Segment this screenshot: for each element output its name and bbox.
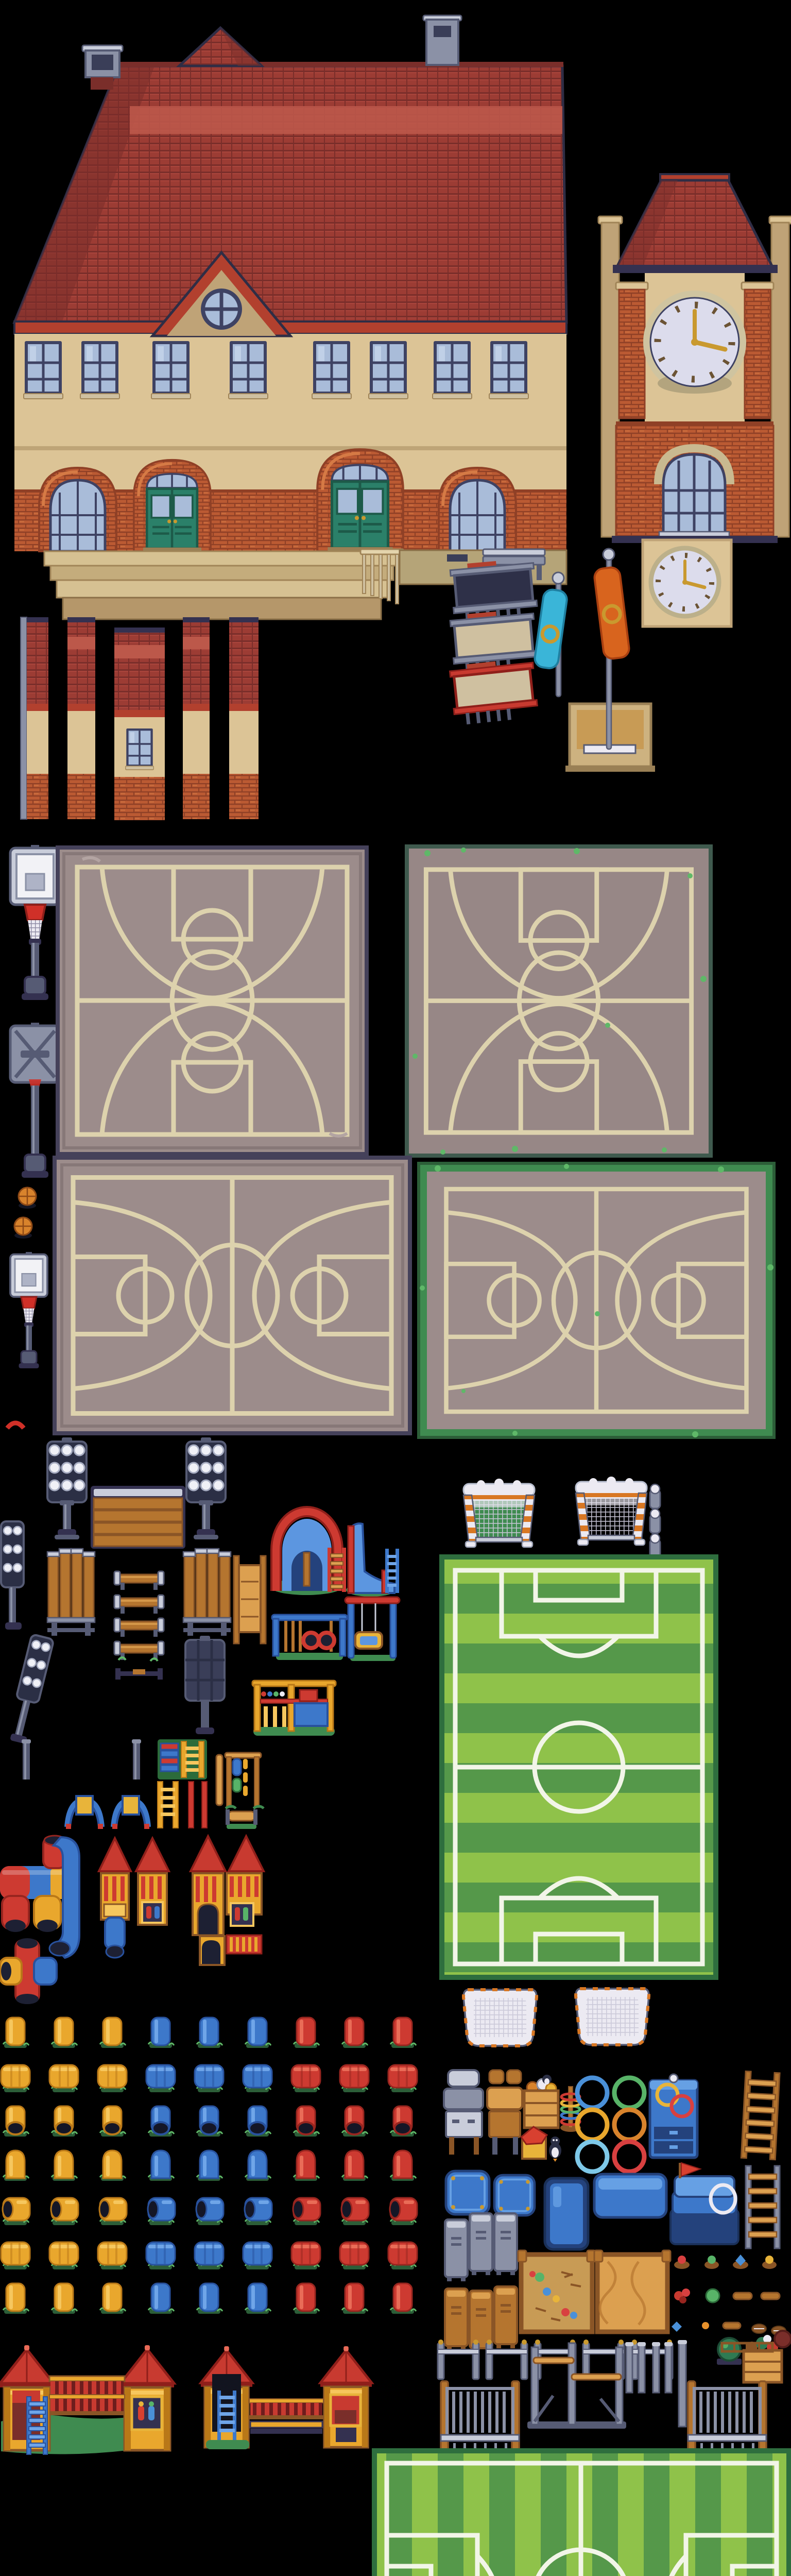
wall-strip-4 (183, 617, 210, 819)
step-unit-red-blue (158, 1739, 207, 1780)
tunnel-piece-yellow-v (100, 2018, 126, 2048)
tunnel-piece-blue-side (245, 2198, 272, 2225)
tunnel-piece-yellow-dome (100, 2150, 126, 2181)
hula-hoop (614, 2142, 644, 2172)
tunnel-piece-blue-h (195, 2242, 223, 2269)
tunnel-piece-yellow-h (49, 2065, 78, 2092)
tunnel-piece-blue-h (243, 2065, 272, 2092)
rim-red (7, 1423, 24, 1428)
wall-strips (21, 617, 259, 820)
tunnel-piece-red-v (390, 2018, 416, 2048)
penguin-toy (549, 2137, 561, 2162)
arch-window-right (439, 468, 516, 551)
monkey-bars (272, 1615, 347, 1660)
tunnel-piece-red-h (340, 2065, 369, 2092)
clock-wall-tile (643, 540, 731, 626)
tunnel-piece-blue-v (245, 2018, 271, 2048)
low-hurdle (115, 1668, 163, 1680)
tunnel-piece-red-side (390, 2198, 417, 2225)
fort-bridge-small (201, 2346, 372, 2449)
rings-cabinet (650, 2074, 697, 2158)
hula-hoop (614, 2110, 644, 2140)
goal-pegs (649, 1484, 665, 1559)
tunnel-piece-yellow-open (3, 2106, 29, 2137)
wall-strip-2 (67, 617, 95, 819)
hurdle-gate (486, 2340, 527, 2379)
chimney-2 (423, 15, 461, 65)
vault-boxes-gray (444, 2070, 483, 2155)
wall-strip-1 (21, 617, 48, 819)
clock-tower (598, 174, 791, 543)
tunnel-piece-red-v (294, 2283, 319, 2314)
wall-strip-5 (229, 617, 259, 819)
hula-hoop (577, 2110, 607, 2140)
tunnel-piece-yellow-dome (51, 2150, 77, 2181)
wood-bleacher-panel (91, 1486, 185, 1549)
soccer-field-portrait (442, 1557, 716, 1977)
basketball-court-portrait (58, 848, 367, 1154)
tunnel-piece-blue-v (148, 2283, 174, 2314)
play-fort-small (252, 1681, 336, 1736)
climb-pole (216, 1755, 222, 1805)
tunnel-piece-yellow-h (98, 2242, 127, 2269)
goal-top (576, 1989, 649, 2045)
fort-bridge-large (0, 2345, 174, 2454)
bead-toys (261, 1691, 285, 1697)
slide-ladder-blue (385, 1549, 399, 1593)
tunnel-piece-yellow-h (49, 2242, 78, 2269)
swing-set (345, 1597, 400, 1661)
tube-grid (1, 2018, 417, 2314)
floodlight-angled (6, 1634, 54, 1744)
small-props (672, 2255, 786, 2335)
basketball-hoop-small (10, 1252, 47, 1368)
tunnel-piece-yellow-dome (3, 2150, 29, 2181)
tunnel-piece-red-v (342, 2018, 368, 2048)
arch-bridge-2 (112, 1796, 149, 1829)
tunnel-piece-red-v (390, 2283, 416, 2314)
tunnel-piece-blue-h (146, 2242, 175, 2269)
tower-clock (643, 291, 746, 394)
tunnel-piece-blue-open (148, 2106, 174, 2137)
slide-arch-front (270, 1512, 346, 1595)
tunnel-piece-yellow-open (100, 2106, 126, 2137)
tunnel-piece-yellow-side (3, 2198, 30, 2225)
flag-cyan (534, 572, 568, 697)
tunnel-piece-red-dome (294, 2150, 319, 2181)
school-building (14, 15, 566, 619)
gym-mat-1 (446, 2171, 489, 2214)
tunnel-piece-red-dome (390, 2150, 416, 2181)
tunnel-piece-blue-v (197, 2283, 222, 2314)
playhouse-tube (99, 1838, 131, 1958)
basketball-hoop-front (10, 845, 60, 1000)
tunnel-cross-red (0, 1938, 57, 2004)
hula-hoop (577, 2142, 607, 2172)
tunnel-piece-red-side (293, 2198, 320, 2225)
tunnel-piece-red-open (294, 2106, 319, 2137)
play-fort-large (191, 1836, 264, 1965)
tunnel-piece-red-h (388, 2065, 417, 2092)
ball-crate (524, 2075, 558, 2128)
tunnel-piece-yellow-v (51, 2018, 77, 2048)
tunnel-piece-yellow-h (1, 2065, 30, 2092)
basketball-2 (14, 1217, 32, 1239)
hula-hoops (577, 2078, 644, 2172)
floodlight-back (185, 1636, 225, 1734)
tunnel-piece-blue-dome (197, 2150, 222, 2181)
tunnel-piece-blue-v (197, 2018, 222, 2048)
ladder-metal (746, 2166, 780, 2248)
tunnel-piece-blue-h (195, 2065, 223, 2092)
tunnel-piece-blue-v (245, 2283, 271, 2314)
wall-strip-3-window (114, 628, 165, 820)
maroon-ball (775, 2331, 791, 2347)
slide-side (346, 1523, 399, 1597)
swing-frame-wood (225, 1753, 264, 1808)
tunnel-piece-red-v (294, 2018, 319, 2048)
slide-ladder (328, 1548, 346, 1592)
soccer-field-landscape (374, 2451, 789, 2576)
spritesheet-canvas (0, 0, 791, 2576)
tunnel-piece-yellow-side (99, 2198, 127, 2225)
basketball-court-portrait-mossy (407, 846, 711, 1156)
basketball-court-landscape-grass (419, 1163, 774, 1437)
floodlight-front-1 (47, 1437, 87, 1539)
basketball-hoop-back (10, 1023, 60, 1178)
wood-panel-small (234, 1556, 266, 1643)
pole-1 (22, 1739, 31, 1780)
tunnel-piece-blue-side (148, 2198, 175, 2225)
tunnel-piece-yellow-v (3, 2018, 29, 2048)
board-pit (594, 2250, 670, 2332)
tunnel-piece-yellow-v (51, 2283, 77, 2314)
tunnel-piece-red-side (341, 2198, 369, 2225)
basketball-court-landscape (55, 1158, 410, 1433)
flag-box (521, 2127, 547, 2159)
tunnel-piece-red-dome (342, 2150, 368, 2181)
arch-bridge-1 (66, 1796, 103, 1829)
hula-hoop (577, 2078, 607, 2108)
goal-top-grass (463, 1990, 537, 2046)
tunnel-piece-blue-h (243, 2242, 272, 2269)
tunnel-piece-red-h (291, 2242, 320, 2269)
tunnel-piece-yellow-h (1, 2242, 30, 2269)
bench-row (114, 1571, 164, 1661)
tunnel-piece-blue-side (196, 2198, 223, 2225)
gym-mat-wide (594, 2174, 666, 2217)
floodlight-side (1, 1521, 24, 1630)
tunnel-piece-blue-v (148, 2018, 174, 2048)
mat-stack-flag (670, 2163, 738, 2244)
arch-door-center (317, 449, 403, 551)
tunnel-piece-red-h (340, 2242, 369, 2269)
gym-mat-tall (545, 2178, 588, 2249)
playhouse-window (136, 1838, 169, 1925)
tunnel-piece-red-h (388, 2242, 417, 2269)
floodlight-front-2 (186, 1437, 226, 1539)
tunnel-piece-yellow-v (100, 2283, 126, 2314)
basketball-1 (19, 1188, 36, 1209)
arch-door-left (134, 460, 211, 551)
tunnel-piece-red-open (342, 2106, 368, 2137)
tunnel-piece-blue-h (146, 2065, 175, 2092)
tunnel-piece-red-open (390, 2106, 416, 2137)
ladder-frame-yellow (158, 1782, 207, 1828)
tunnel-piece-blue-dome (148, 2150, 174, 2181)
wood-stand-left (47, 1549, 95, 1636)
goal-front (576, 1477, 647, 1545)
lockers-gray (445, 2213, 517, 2281)
goal-front-grass (463, 1479, 535, 1547)
tunnel-piece-blue-open (245, 2106, 271, 2137)
tunnel-piece-red-h (291, 2065, 320, 2092)
sand-pit (518, 2250, 595, 2332)
ladder-wood (741, 2071, 780, 2159)
hula-hoop (614, 2078, 644, 2108)
tunnel-piece-blue-dome (245, 2150, 271, 2181)
pole-2 (132, 1739, 141, 1780)
tunnel-bottom-openings (2, 1896, 61, 1932)
tunnel-piece-blue-open (197, 2106, 222, 2137)
tunnel-piece-yellow-h (98, 2065, 127, 2092)
tunnel-piece-red-v (342, 2283, 368, 2314)
arch-window-left (39, 468, 116, 551)
school-steps (44, 549, 404, 619)
pull-up-bars (527, 2343, 626, 2429)
tunnel-piece-yellow-v (3, 2283, 29, 2314)
log-roller (226, 1809, 257, 1829)
gym-mat-2 (494, 2175, 535, 2215)
vault-boxes-brown (487, 2070, 522, 2155)
wood-stand-right (183, 1549, 231, 1636)
notice-board-red-trim (449, 657, 538, 725)
lockers-brown (445, 2286, 517, 2352)
tunnel-piece-yellow-side (51, 2198, 78, 2225)
tunnel-piece-yellow-open (51, 2106, 77, 2137)
